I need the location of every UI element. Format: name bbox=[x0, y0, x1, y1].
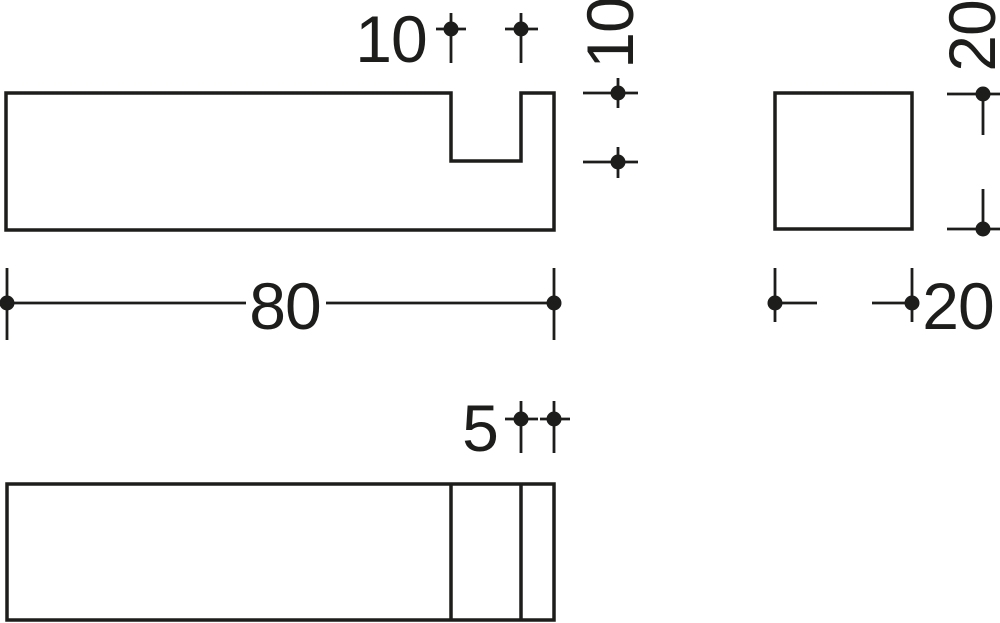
side-view-outline bbox=[6, 93, 554, 230]
dimension-dot bbox=[547, 412, 562, 427]
dimension-dot bbox=[611, 86, 626, 101]
dimension-dot bbox=[768, 296, 783, 311]
dimension-dot bbox=[514, 412, 529, 427]
dimension-dot bbox=[514, 22, 529, 37]
dimension-dot bbox=[444, 22, 459, 37]
dim-end-width-label: 20 bbox=[922, 269, 993, 343]
dim-notch-width-label: 10 bbox=[355, 2, 426, 76]
dimension-dot bbox=[976, 87, 991, 102]
dim-end-width: 20 bbox=[768, 268, 994, 343]
dim-wall-thickness-label: 5 bbox=[462, 391, 498, 465]
dimension-dot bbox=[976, 222, 991, 237]
dimension-dot bbox=[905, 296, 920, 311]
dimension-dot bbox=[0, 296, 15, 311]
dim-overall-length: 80 bbox=[0, 268, 562, 343]
technical-drawing: 10 10 80 bbox=[0, 0, 1000, 623]
dimension-dot bbox=[547, 296, 562, 311]
dimension-dot bbox=[611, 155, 626, 170]
technical-drawing-canvas: 10 10 80 bbox=[0, 0, 1000, 623]
dim-wall-thickness: 5 bbox=[462, 391, 570, 465]
dim-notch-depth: 10 bbox=[573, 0, 647, 178]
dim-end-height-label: 20 bbox=[935, 0, 1000, 71]
plan-view-outline bbox=[7, 484, 554, 620]
dim-notch-depth-label: 10 bbox=[573, 0, 647, 69]
dim-end-height: 20 bbox=[935, 0, 1000, 236]
dim-overall-length-label: 80 bbox=[249, 269, 320, 343]
dim-notch-width: 10 bbox=[355, 2, 538, 76]
end-view-outline bbox=[775, 93, 912, 229]
